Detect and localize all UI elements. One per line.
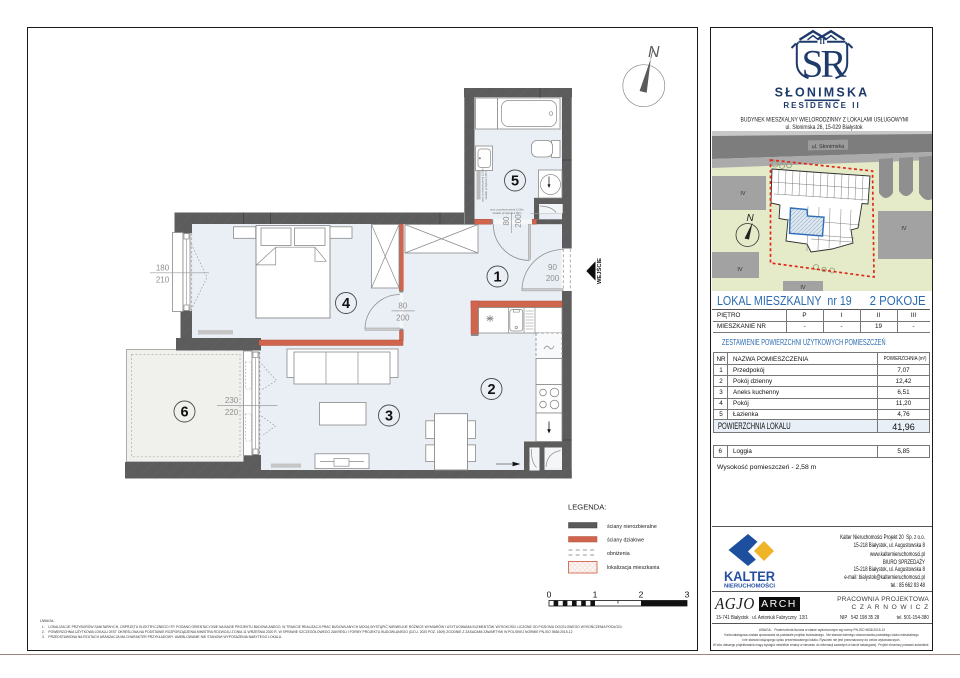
svg-text:ściany nierozbieralne: ściany nierozbieralne xyxy=(607,524,657,530)
svg-text:80: 80 xyxy=(502,216,511,225)
svg-text:WEJŚCIE: WEJŚCIE xyxy=(596,258,603,284)
svg-text:IV: IV xyxy=(800,285,806,291)
svg-text:RESIDENCE II: RESIDENCE II xyxy=(783,101,860,110)
svg-text:światło przejścia 2,05m: światło przejścia 2,05m xyxy=(493,211,523,215)
svg-text:200: 200 xyxy=(514,214,523,228)
svg-text:220: 220 xyxy=(225,408,239,417)
svg-text:BUDYNEK MIESZKALNY WIELORODZIN: BUDYNEK MIESZKALNY WIELORODZINNY Z LOKAL… xyxy=(740,117,908,124)
svg-text:180: 180 xyxy=(156,264,170,273)
svg-text:1: 1 xyxy=(593,590,598,600)
svg-text:6: 6 xyxy=(180,405,188,421)
svg-text:NIERUCHOMOŚCI: NIERUCHOMOŚCI xyxy=(724,583,776,590)
svg-text:KALTER: KALTER xyxy=(724,569,775,584)
svg-text:3: 3 xyxy=(385,409,393,425)
svg-text:lokalizacja mieszkania: lokalizacja mieszkania xyxy=(607,565,659,571)
svg-text:LEGENDA:: LEGENDA: xyxy=(568,503,606,512)
svg-text:2: 2 xyxy=(639,590,644,600)
svg-text:90: 90 xyxy=(548,263,557,272)
svg-text:IV: IV xyxy=(737,267,743,273)
svg-text:światło przejścia 2,05m: światło przejścia 2,05m xyxy=(484,170,488,200)
svg-text:ul. Słonimska 26, 15-029 Biały: ul. Słonimska 26, 15-029 Białystok xyxy=(785,124,863,131)
svg-text:N: N xyxy=(746,213,754,224)
svg-text:IV: IV xyxy=(901,226,907,232)
svg-text:200: 200 xyxy=(396,314,410,323)
svg-text:0: 0 xyxy=(547,590,552,600)
svg-text:1: 1 xyxy=(493,270,501,286)
svg-text:SŁONIMSKA: SŁONIMSKA xyxy=(774,86,869,100)
svg-text:210: 210 xyxy=(156,276,170,285)
svg-text:N: N xyxy=(648,44,660,61)
svg-text:ściany działowe: ściany działowe xyxy=(607,538,644,544)
svg-text:230: 230 xyxy=(225,396,239,405)
svg-text:5: 5 xyxy=(511,174,519,190)
svg-text:3: 3 xyxy=(685,590,690,600)
svg-text:R: R xyxy=(820,43,846,86)
svg-text:IV: IV xyxy=(740,191,746,197)
svg-text:200: 200 xyxy=(546,274,560,283)
svg-text:2: 2 xyxy=(487,382,495,398)
svg-text:ul. Słonimska: ul. Słonimska xyxy=(811,144,845,151)
svg-text:obniżenia: obniżenia xyxy=(607,551,630,557)
svg-text:80: 80 xyxy=(398,302,407,311)
svg-text:4: 4 xyxy=(342,296,350,312)
